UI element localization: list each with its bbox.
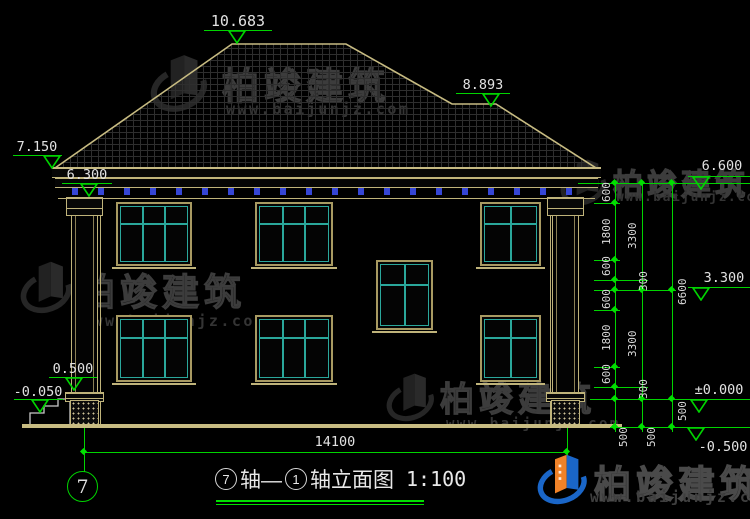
mullion [510, 320, 512, 377]
right-column-capital [547, 197, 584, 216]
roof-outline [55, 44, 596, 168]
dentil-band [72, 188, 582, 195]
elev-triangle [228, 30, 246, 44]
mullion [304, 207, 306, 261]
elev-right-ground: -0.500 [695, 439, 750, 455]
elev-roof-break: 8.893 [455, 77, 511, 93]
dim-label: 500 [617, 420, 630, 454]
elev-right-zero: ±0.000 [691, 382, 747, 398]
mullion [164, 320, 166, 377]
mullion [164, 207, 166, 261]
title-suffix: 轴立面图 [310, 464, 394, 494]
wall-edge-right [550, 200, 551, 424]
mullion [282, 207, 284, 261]
ground-line [22, 424, 622, 428]
window-sill [112, 267, 196, 269]
elev-eave-left-top: 7.150 [12, 139, 62, 155]
elev-triangle [65, 377, 83, 391]
brand-url: www.baijunjz.com [590, 488, 750, 506]
elevation-drawing: 柏竣建筑 www.baijunjz.com 柏竣建筑 www.baijunjz.… [0, 0, 750, 519]
mullion [304, 320, 306, 377]
window-glazing [259, 206, 329, 262]
axis-bubble-7: 7 [67, 471, 98, 502]
mullion [510, 207, 512, 261]
capital-moulding [66, 398, 103, 399]
dim-label: 300 [637, 372, 650, 406]
left-pedestal [70, 400, 99, 426]
dim-label: 600 [600, 284, 613, 314]
title-underline-2 [216, 504, 424, 505]
right-column-shaft [552, 214, 579, 392]
transom [121, 337, 187, 339]
dim-label: 600 [600, 176, 613, 208]
window-1f-mid [255, 315, 333, 382]
elev-triangle [31, 399, 49, 413]
window-glazing [120, 206, 188, 262]
window-glazing [380, 264, 429, 326]
eave-fascia-upper [52, 167, 601, 178]
window-sill [372, 331, 437, 333]
transom [260, 337, 328, 339]
transom [485, 223, 536, 225]
capital-moulding [548, 208, 583, 209]
mullion [142, 320, 144, 377]
mullion [142, 207, 144, 261]
window-stair-mid [376, 260, 433, 330]
drawing-title: 7 轴— 1 轴立面图 1:100 [212, 464, 466, 494]
eave-fascia-lower [55, 178, 598, 188]
window-glazing [484, 319, 537, 378]
left-column-capital [66, 197, 103, 216]
transom [381, 284, 428, 286]
title-axis-end: 1 [285, 468, 307, 490]
dim-label: 3300 [626, 208, 639, 264]
dim-label: 600 [600, 358, 613, 390]
window-sill [251, 383, 337, 385]
title-axis-sep: 轴— [240, 464, 282, 494]
mullion [282, 320, 284, 377]
elev-triangle [80, 183, 98, 197]
elev-right-floor2: 3.300 [700, 270, 748, 286]
width-dim-line [84, 452, 567, 453]
transom [260, 223, 328, 225]
dim-label: 500 [645, 420, 658, 454]
dim-label: 3300 [626, 316, 639, 372]
window-2f-left [116, 202, 192, 266]
flute-line [574, 214, 575, 392]
elev-triangle [687, 427, 705, 441]
flute-line [556, 214, 557, 392]
window-sill [476, 267, 545, 269]
elev-triangle [692, 287, 710, 301]
title-axis-start: 7 [215, 468, 237, 490]
dim-label: 1800 [600, 312, 613, 364]
window-sill [112, 383, 196, 385]
eave-trim-line [58, 198, 595, 199]
elev-triangle [482, 93, 500, 107]
window-glazing [120, 319, 188, 378]
mullion [404, 265, 406, 325]
elev-ground-left: -0.050 [12, 384, 64, 400]
transom [485, 337, 536, 339]
brand-logo-icon [537, 449, 591, 509]
elev-porch: 0.500 [48, 361, 98, 377]
transom [121, 223, 187, 225]
axis-bubble-label: 7 [76, 476, 88, 498]
window-1f-left [116, 315, 192, 382]
elev-right-eave: 6.600 [696, 158, 748, 174]
capital-moulding [67, 208, 102, 209]
dim-label: 6600 [676, 262, 689, 322]
window-2f-mid [255, 202, 333, 266]
width-dim-label: 14100 [295, 434, 375, 450]
title-scale: 1:100 [406, 467, 466, 491]
capital-moulding [547, 398, 584, 399]
window-sill [476, 383, 545, 385]
window-sill [251, 267, 337, 269]
dim-label: 300 [637, 264, 650, 298]
window-glazing [259, 319, 329, 378]
elev-eave-left-bottom: 6.300 [62, 167, 112, 183]
window-1f-right [480, 315, 541, 382]
dim-label: 500 [676, 396, 689, 426]
elev-triangle [43, 155, 61, 169]
title-underline-1 [216, 500, 424, 502]
window-2f-right [480, 202, 541, 266]
window-glazing [484, 206, 537, 262]
elev-ridge: 10.683 [203, 12, 273, 30]
wall-edge-left [100, 200, 101, 424]
dim-label: 600 [600, 250, 613, 282]
dim-ext-line [610, 427, 750, 428]
right-pedestal [551, 400, 580, 426]
elev-triangle [690, 399, 708, 413]
